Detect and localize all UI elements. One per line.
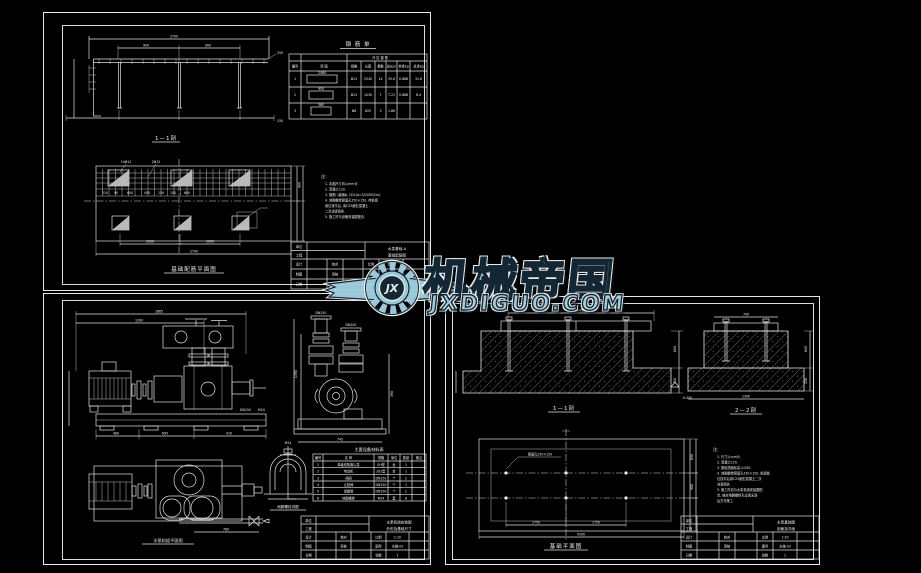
svg-text:简 图: 简 图 [320, 64, 327, 69]
svg-text:校对: 校对 [340, 535, 347, 540]
svg-text:3: 3 [294, 109, 296, 113]
section-2-2: 700 600 250 1300 2—2剖 [688, 313, 814, 415]
svg-text:1: 1 [317, 463, 319, 467]
svg-text:390: 390 [390, 391, 394, 397]
svg-text:250: 250 [804, 378, 808, 384]
svg-text:4. 地脚螺栓预留孔150×150, 待机组: 4. 地脚螺栓预留孔150×150, 待机组 [325, 198, 379, 203]
svg-text:2: 2 [294, 93, 296, 97]
svg-text:DN150: DN150 [376, 476, 387, 480]
svg-text:长度: 长度 [365, 64, 372, 69]
svg-text:设计: 设计 [305, 535, 312, 540]
svg-text:电动机: 电动机 [344, 469, 354, 474]
svg-text:150: 150 [170, 191, 176, 195]
svg-text:7: 7 [379, 93, 381, 97]
svg-text:制图: 制图 [305, 544, 311, 549]
svg-text:图号: 图号 [375, 544, 381, 549]
svg-text:根数: 根数 [377, 64, 384, 69]
svg-text:14: 14 [378, 77, 382, 81]
svg-text:Φ8: Φ8 [352, 109, 357, 113]
svg-text:审核: 审核 [340, 544, 347, 549]
detail-caption: 地脚螺栓详图 [277, 504, 299, 509]
svg-text:600: 600 [673, 346, 677, 352]
plan-caption: 基础平面图 [550, 542, 583, 550]
svg-text:1.86: 1.86 [388, 109, 395, 113]
title-block: 单位 工程 水泵机组安装图 外形及基础尺寸 设计 校对 比例 1:10 制图 审… [301, 516, 429, 559]
pump-end-view: 1390 DN150 DN100 745 390 [294, 311, 394, 442]
svg-text:比例: 比例 [375, 535, 381, 540]
pump-top-view: 760 水泵机组平面图 [89, 460, 269, 544]
svg-text:M24: M24 [378, 496, 385, 500]
drawing-title: 剖面及平面 [777, 526, 795, 531]
section-caption: 1—1剖 [155, 134, 177, 142]
svg-text:1. 本图尺寸均以mm计.: 1. 本图尺寸均以mm计. [325, 181, 359, 186]
dimension-label: 250 [277, 51, 283, 55]
svg-text:Φ12: Φ12 [351, 77, 358, 81]
svg-text:台: 台 [392, 469, 395, 474]
svg-text:地脚螺栓: 地脚螺栓 [342, 495, 356, 500]
svg-text:4100: 4100 [577, 533, 585, 537]
title-block: 单位 工程 水泵基础图 剖面及平面 设计 校对 比例 1:20 制图 审核 图号… [681, 516, 819, 559]
svg-text:90: 90 [114, 191, 118, 195]
svg-text:编号: 编号 [315, 455, 321, 460]
svg-text:水施-03: 水施-03 [779, 544, 791, 549]
svg-text:单位: 单位 [391, 455, 398, 460]
svg-text:1. 尺寸以mm计.: 1. 尺寸以mm计. [717, 454, 741, 459]
drawing-title: 外形及基础尺寸 [386, 526, 412, 531]
svg-text:图号: 图号 [762, 544, 768, 549]
svg-text:7.21: 7.21 [388, 93, 395, 97]
svg-text:2700: 2700 [190, 250, 198, 254]
foundation-plan-view: 预留孔150×150 1750 1750 4100 650 900 基础平面图 [466, 429, 698, 550]
svg-text:6.4: 6.4 [416, 93, 421, 97]
svg-text:名 称: 名 称 [345, 455, 353, 460]
svg-text:2540: 2540 [364, 77, 372, 81]
svg-text:3: 3 [317, 476, 319, 480]
svg-text:700: 700 [743, 313, 749, 317]
bolt-label: M24 [258, 408, 265, 412]
svg-text:1030: 1030 [364, 93, 372, 97]
svg-text:3. 钢筋: I级钢φ, CD2(d=5/2000/2m).: 3. 钢筋: I级钢φ, CD2(d=5/2000/2m). [325, 192, 381, 197]
svg-text:480: 480 [113, 432, 119, 436]
svg-text:审核: 审核 [724, 544, 731, 549]
svg-text:1:10: 1:10 [394, 536, 401, 540]
svg-text:1: 1 [396, 554, 398, 558]
drawing-title: 水泵机组安装图 [386, 520, 412, 525]
drawing-title: 水泵基础图 [777, 520, 795, 525]
svg-text:650: 650 [690, 454, 694, 460]
svg-text:2: 2 [317, 470, 319, 474]
svg-text:工程: 工程 [686, 526, 693, 531]
svg-text:JO2型: JO2型 [376, 469, 386, 474]
svg-text:2. 混凝土C20.: 2. 混凝土C20. [717, 460, 738, 465]
svg-text:560: 560 [318, 103, 324, 107]
dimension-label: 900 [205, 44, 211, 48]
svg-text:单位: 单位 [296, 244, 303, 249]
svg-text:900: 900 [690, 484, 694, 490]
level-label: -0.050 [682, 396, 692, 400]
svg-text:1865: 1865 [155, 310, 163, 314]
svg-text:2460: 2460 [318, 71, 326, 75]
sheet2-drawing: 1865 1200 [44, 294, 430, 564]
svg-text:日期: 日期 [686, 553, 692, 558]
pipe-label: DN150 [240, 408, 251, 412]
svg-text:250: 250 [673, 378, 677, 384]
logo-monogram: JX [384, 282, 399, 295]
svg-text:1390: 1390 [294, 370, 298, 378]
svg-text:张数: 张数 [375, 553, 382, 558]
svg-text:1200: 1200 [206, 240, 214, 244]
svg-text:总长m: 总长m [387, 64, 396, 69]
svg-text:1: 1 [784, 554, 786, 558]
rebar-callout: 2Φ12 [152, 160, 161, 164]
svg-text:编号: 编号 [292, 64, 298, 69]
svg-text:745: 745 [337, 438, 343, 442]
leader-label: 预留孔150×150 [528, 452, 552, 457]
reinforcement-plan-view: 210 90 600 450 150 150 600 14Φ12 2Φ12 [84, 159, 305, 273]
svg-text:0.888: 0.888 [399, 77, 408, 81]
svg-text:渐缩管: 渐缩管 [344, 489, 354, 494]
svg-text:个: 个 [392, 490, 396, 494]
svg-text:比例: 比例 [762, 535, 768, 540]
svg-text:闸阀: 闸阀 [345, 475, 351, 480]
svg-text:1: 1 [405, 483, 407, 487]
notes-title: 注: [713, 446, 719, 453]
svg-text:位找平后用C25细石混凝土二次: 位找平后用C25细石混凝土二次 [717, 476, 762, 481]
svg-text:695: 695 [162, 432, 168, 436]
svg-text:规格: 规格 [351, 64, 358, 69]
table-title: 主要设备材料表 [354, 446, 384, 453]
svg-text:1200: 1200 [146, 240, 154, 244]
svg-text:2. 混凝土C20.: 2. 混凝土C20. [325, 187, 346, 192]
svg-text:个: 个 [392, 483, 396, 487]
svg-text:校对: 校对 [724, 535, 731, 540]
svg-text:1750: 1750 [592, 521, 600, 525]
notes-block: 注: 1. 本图尺寸均以mm计. 2. 混凝土C20. 3. 钢筋: I级钢φ,… [321, 173, 381, 219]
bolt-label: M24 [285, 441, 292, 445]
svg-text:600: 600 [804, 346, 808, 352]
section-caption: 1—1剖 [553, 404, 575, 412]
svg-text:合, 核对地脚螺栓孔位置无误: 合, 核对地脚螺栓孔位置无误 [717, 493, 758, 498]
svg-text:总重kg: 总重kg [413, 64, 423, 69]
svg-text:张数: 张数 [762, 553, 769, 558]
watermark-domain-text: JXDIGUO.COM [429, 291, 628, 315]
plan-caption: 基础配筋平面图 [171, 265, 217, 273]
anchor-bolt-detail: M24 地脚螺栓详图 [264, 441, 312, 510]
svg-text:31.6: 31.6 [415, 77, 422, 81]
svg-text:5. 施工时应与水泵机组安装图配: 5. 施工时应与水泵机组安装图配 [717, 487, 763, 492]
svg-text:1750: 1750 [532, 521, 540, 525]
svg-text:950: 950 [318, 87, 324, 91]
svg-text:2: 2 [405, 490, 407, 494]
svg-text:DN150: DN150 [376, 490, 387, 494]
rebar-callout: 14Φ12 [121, 160, 132, 164]
svg-text:套: 套 [392, 495, 396, 500]
svg-text:工程: 工程 [296, 253, 303, 258]
table-band-header: 冷 拉 钢 筋 [372, 55, 388, 60]
svg-text:600: 600 [127, 191, 133, 195]
svg-text:备注: 备注 [416, 455, 423, 460]
notes-block: 注: 1. 尺寸以mm计. 2. 混凝土C20. 3. 基础顶面标高-0.050… [713, 446, 771, 503]
svg-text:制图: 制图 [686, 544, 692, 549]
svg-text:1: 1 [294, 77, 296, 81]
watermark: JX 机械帝国 JXDIGUO.COM [322, 246, 622, 326]
cad-viewer-canvas: 2700 900 900 250 150 1—1剖 [0, 0, 921, 573]
svg-text:450: 450 [144, 191, 150, 195]
svg-text:单级双吸离心泵: 单级双吸离心泵 [337, 462, 360, 467]
anchor-plate [112, 208, 268, 230]
svg-text:4: 4 [317, 483, 319, 487]
elevation-view: 2700 900 900 250 150 1—1剖 [66, 35, 283, 143]
svg-text:2: 2 [405, 476, 407, 480]
svg-text:浇灌捣实.: 浇灌捣实. [717, 482, 731, 487]
drawing-sheet-foundation-sections: 1450 600 250 -0.050 1—1剖 700 [445, 296, 820, 565]
dimension-label: 900 [143, 44, 149, 48]
svg-text:制图: 制图 [296, 272, 302, 277]
equipment-table: 主要设备材料表 编号 名 称 规格 单位 数量 备注 1 单级双吸离心泵 SH型… [313, 446, 426, 501]
svg-text:就位找平后, 用C25细石混凝土: 就位找平后, 用C25细石混凝土 [325, 203, 369, 208]
drawing-sheet-pump-installation: 1865 1200 [43, 293, 431, 565]
svg-text:600: 600 [184, 191, 190, 195]
dimension-label: 150 [277, 119, 283, 123]
svg-text:DN150: DN150 [376, 483, 387, 487]
svg-text:个: 个 [392, 476, 396, 480]
svg-text:单重kg: 单重kg [398, 64, 408, 69]
svg-text:5: 5 [317, 490, 319, 494]
svg-text:3. 基础顶面标高-0.050.: 3. 基础顶面标高-0.050. [717, 465, 751, 470]
svg-text:日期: 日期 [296, 282, 302, 287]
dimension-label: 2700 [170, 35, 178, 39]
svg-text:4. 地脚螺栓预留孔150×150, 机组就: 4. 地脚螺栓预留孔150×150, 机组就 [717, 471, 771, 476]
svg-text:水施-02: 水施-02 [392, 544, 404, 549]
svg-text:1:20: 1:20 [781, 536, 788, 540]
svg-text:5. 施工时与设备安装图配合.: 5. 施工时与设备安装图配合. [325, 214, 365, 219]
svg-text:Φ12: Φ12 [351, 93, 358, 97]
svg-text:1300: 1300 [742, 395, 750, 399]
svg-text:3: 3 [379, 109, 381, 113]
svg-text:150: 150 [158, 191, 164, 195]
svg-text:后方可施工.: 后方可施工. [717, 498, 734, 503]
svg-text:设计: 设计 [686, 535, 693, 540]
pump-side-view: 1865 1200 [69, 310, 266, 440]
sheet3-drawing: 1450 600 250 -0.050 1—1剖 700 [446, 297, 819, 564]
svg-text:单位: 单位 [305, 518, 312, 523]
svg-text:410: 410 [226, 432, 232, 436]
svg-text:1: 1 [405, 470, 407, 474]
svg-text:日期: 日期 [305, 553, 311, 558]
svg-text:210: 210 [102, 191, 108, 195]
svg-text:6: 6 [405, 496, 407, 500]
rebar-schedule-table: 钢 筋 单 冷 拉 钢 筋 编号 简 图 规格 长度 根数 总长m 单重kg 总… [289, 40, 427, 119]
svg-text:900: 900 [298, 182, 302, 188]
svg-text:台: 台 [392, 462, 395, 467]
svg-text:35.6: 35.6 [388, 77, 395, 81]
table-title: 钢 筋 单 [346, 40, 371, 48]
svg-text:工程: 工程 [305, 526, 312, 531]
notes-title: 注: [321, 173, 327, 180]
svg-text:数量: 数量 [403, 455, 410, 460]
svg-text:620: 620 [365, 109, 371, 113]
svg-text:0.888: 0.888 [399, 93, 408, 97]
view-caption: 水泵机组平面图 [153, 537, 182, 544]
svg-text:设计: 设计 [296, 262, 303, 267]
svg-text:单位: 单位 [686, 518, 693, 523]
svg-text:SH型: SH型 [377, 462, 385, 467]
svg-text:止回阀: 止回阀 [344, 482, 354, 487]
svg-text:6: 6 [317, 496, 319, 500]
section-caption: 2—2剖 [735, 406, 757, 414]
svg-text:760: 760 [223, 528, 229, 532]
svg-text:规格: 规格 [378, 455, 385, 460]
svg-text:1: 1 [405, 463, 407, 467]
svg-text:1200: 1200 [135, 319, 143, 323]
svg-text:二次浇灌捣实.: 二次浇灌捣实. [325, 209, 345, 214]
